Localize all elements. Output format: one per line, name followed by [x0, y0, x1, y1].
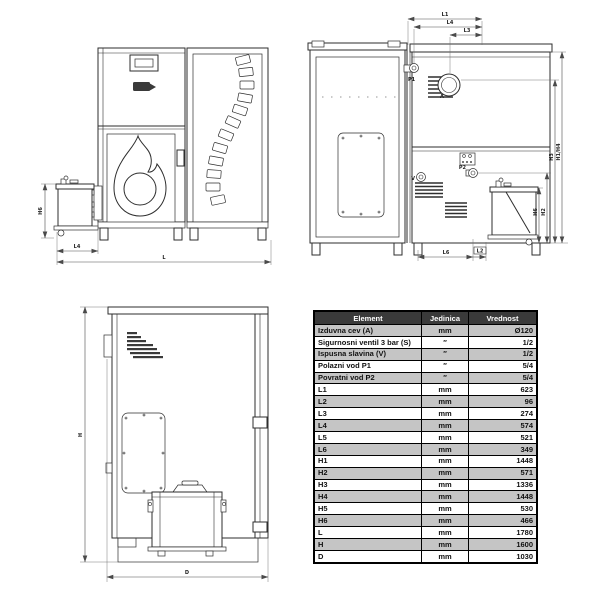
- spec-row: H5 mm 530: [314, 503, 537, 515]
- v-label: V: [411, 176, 415, 182]
- spec-table-header: Element Jedinica Vrednost: [314, 311, 537, 325]
- spec-element-cell: Ispusna slavina (V): [314, 348, 422, 360]
- spec-element-cell: H3: [314, 479, 422, 491]
- spec-unit-cell: mm: [422, 443, 469, 455]
- spec-unit-cell: mm: [422, 420, 469, 432]
- spec-element-cell: H: [314, 539, 422, 551]
- spec-row: Ispusna slavina (V) ″ 1/2: [314, 348, 537, 360]
- side-cleaning-door: [122, 413, 165, 493]
- spec-element-cell: L: [314, 527, 422, 539]
- spec-unit-cell: ″: [422, 372, 469, 384]
- spec-value-cell: 466: [469, 515, 538, 527]
- flue-a-label: A: [440, 94, 444, 100]
- p2-label: P2: [459, 165, 467, 171]
- spec-unit-cell: mm: [422, 491, 469, 503]
- side-view-drawing: H D: [60, 295, 310, 600]
- rear-view-drawing: P1 A: [300, 5, 600, 290]
- spec-element-cell: H1: [314, 455, 422, 467]
- spec-element-cell: Povratni vod P2: [314, 372, 422, 384]
- hopper-side-panel: [308, 41, 407, 255]
- spec-unit-cell: mm: [422, 515, 469, 527]
- spec-table: Element Jedinica Vrednost Izduvna cev (A…: [313, 310, 538, 564]
- spec-value-cell: 1448: [469, 491, 538, 503]
- spec-row: H4 mm 1448: [314, 491, 537, 503]
- spec-unit-cell: mm: [422, 503, 469, 515]
- spec-value-cell: 96: [469, 396, 538, 408]
- dim-label-d-side: D: [185, 570, 189, 576]
- dim-label-l4-front: L4: [74, 244, 81, 250]
- spec-table-body: Izduvna cev (A) mm Ø120 Sigurnosni venti…: [314, 325, 537, 563]
- control-box: [460, 153, 475, 165]
- spec-element-cell: Polazni vod P1: [314, 360, 422, 372]
- dim-label-h1-h4: H1/H4: [556, 143, 562, 161]
- spec-unit-cell: mm: [422, 467, 469, 479]
- spec-element-cell: H6: [314, 515, 422, 527]
- hopper-unit-front: [187, 48, 268, 222]
- side-access-door: [338, 133, 384, 217]
- spec-element-cell: H4: [314, 491, 422, 503]
- spec-row: H3 mm 1336: [314, 479, 537, 491]
- door-hinge-lower: [253, 522, 267, 532]
- spec-row: H mm 1600: [314, 539, 537, 551]
- spec-element-cell: H5: [314, 503, 422, 515]
- front-view-drawing: H6 L4 L: [30, 8, 300, 270]
- col-header-element: Element: [314, 311, 422, 325]
- spec-value-cell: 5/4: [469, 360, 538, 372]
- spec-row: Polazni vod P1 ″ 5/4: [314, 360, 537, 372]
- spec-unit-cell: mm: [422, 325, 469, 337]
- spec-unit-cell: mm: [422, 527, 469, 539]
- spec-unit-cell: ″: [422, 360, 469, 372]
- door-handle: [177, 150, 184, 166]
- spec-row: L1 mm 623: [314, 384, 537, 396]
- spec-row: L3 mm 274: [314, 408, 537, 420]
- col-header-value: Vrednost: [469, 311, 538, 325]
- spec-element-cell: L2: [314, 396, 422, 408]
- dim-label-h-side: H: [78, 433, 84, 437]
- spec-unit-cell: ″: [422, 348, 469, 360]
- p1-label: P1: [408, 77, 416, 83]
- boiler-datasheet-page: H6 L4 L: [0, 0, 600, 600]
- spec-value-cell: 1600: [469, 539, 538, 551]
- spec-value-cell: 571: [469, 467, 538, 479]
- spec-row: H2 mm 571: [314, 467, 537, 479]
- spec-unit-cell: mm: [422, 455, 469, 467]
- dim-label-l6: L6: [443, 250, 450, 256]
- external-burner-bin-rear: [488, 178, 538, 245]
- spec-element-cell: L3: [314, 408, 422, 420]
- spec-row: H6 mm 466: [314, 515, 537, 527]
- spec-row: L6 mm 349: [314, 443, 537, 455]
- spec-row: Sigurnosni ventil 3 bar (S) ″ 1/2: [314, 336, 537, 348]
- spec-row: D mm 1030: [314, 550, 537, 562]
- spec-value-cell: 574: [469, 420, 538, 432]
- spec-unit-cell: mm: [422, 539, 469, 551]
- spec-row: Povratni vod P2 ″ 5/4: [314, 372, 537, 384]
- spec-value-cell: 274: [469, 408, 538, 420]
- spec-element-cell: L5: [314, 432, 422, 444]
- header-row: Element Jedinica Vrednost: [314, 311, 537, 325]
- dim-label-l3: L3: [464, 28, 471, 34]
- spec-row: H1 mm 1448: [314, 455, 537, 467]
- ash-bin-side: [148, 481, 226, 556]
- spec-value-cell: 1780: [469, 527, 538, 539]
- dim-label-h3: H3: [549, 153, 555, 161]
- spec-row: L5 mm 521: [314, 432, 537, 444]
- spec-unit-cell: mm: [422, 396, 469, 408]
- dim-label-h6-front: H6: [38, 207, 44, 215]
- base-and-feet: [98, 222, 268, 240]
- dim-label-l4: L4: [447, 20, 454, 26]
- dim-label-h6-rear: H6: [533, 208, 539, 216]
- spec-row: L2 mm 96: [314, 396, 537, 408]
- spec-unit-cell: mm: [422, 384, 469, 396]
- spec-unit-cell: ″: [422, 336, 469, 348]
- spec-unit-cell: mm: [422, 408, 469, 420]
- spec-element-cell: H2: [314, 467, 422, 479]
- dim-label-h2: H2: [541, 208, 547, 216]
- spec-row: L mm 1780: [314, 527, 537, 539]
- spec-value-cell: 623: [469, 384, 538, 396]
- col-header-unit: Jedinica: [422, 311, 469, 325]
- dim-label-l1: L1: [442, 12, 449, 18]
- spec-value-cell: 1336: [469, 479, 538, 491]
- spec-element-cell: Izduvna cev (A): [314, 325, 422, 337]
- spec-value-cell: 521: [469, 432, 538, 444]
- spec-value-cell: 5/4: [469, 372, 538, 384]
- spec-element-cell: L1: [314, 384, 422, 396]
- boiler-unit-front: [98, 48, 185, 224]
- spec-row: Izduvna cev (A) mm Ø120: [314, 325, 537, 337]
- door-hinge-upper: [253, 417, 267, 428]
- spec-value-cell: 1030: [469, 550, 538, 562]
- dim-label-l2: L2: [477, 249, 484, 255]
- spec-row: L4 mm 574: [314, 420, 537, 432]
- dim-label-l-front: L: [162, 255, 166, 261]
- spec-unit-cell: mm: [422, 550, 469, 562]
- spec-value-cell: 349: [469, 443, 538, 455]
- spec-element-cell: L6: [314, 443, 422, 455]
- spec-value-cell: 530: [469, 503, 538, 515]
- spec-value-cell: Ø120: [469, 325, 538, 337]
- spec-value-cell: 1448: [469, 455, 538, 467]
- spec-unit-cell: mm: [422, 432, 469, 444]
- spec-element-cell: L4: [314, 420, 422, 432]
- spec-value-cell: 1/2: [469, 348, 538, 360]
- spec-element-cell: Sigurnosni ventil 3 bar (S): [314, 336, 422, 348]
- spec-element-cell: D: [314, 550, 422, 562]
- spec-value-cell: 1/2: [469, 336, 538, 348]
- spec-unit-cell: mm: [422, 479, 469, 491]
- external-burner-bin: [54, 176, 102, 236]
